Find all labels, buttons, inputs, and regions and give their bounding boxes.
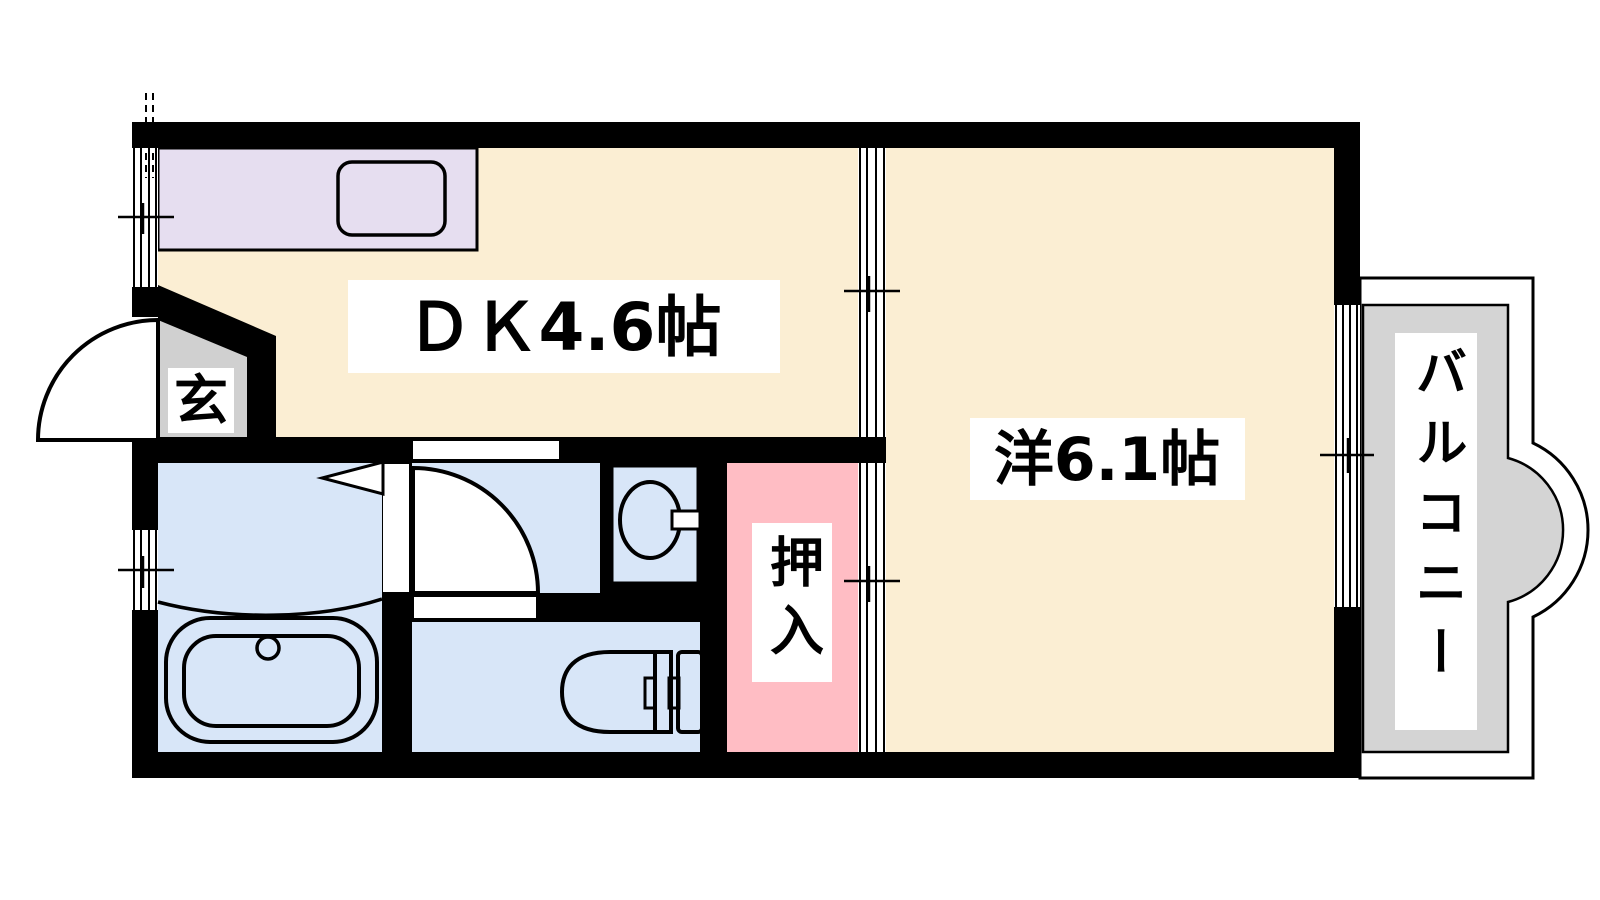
wall-closet-left [700,463,727,752]
wall-top [132,122,1360,148]
wall-right-seg2 [1334,607,1360,752]
wall-left-seg3 [132,610,158,752]
entrance-label: 玄 [174,369,228,432]
floor-plan: ＤＫ4.6帖 洋6.1帖 玄 押入 バルコニー [0,0,1600,900]
sliding-door-dk-washroom [412,440,560,460]
balcony-label: バルコニー [1406,345,1466,695]
basin-tap [672,511,700,529]
closet-label: 押入 [761,534,824,670]
floor-plan-page: ＤＫ4.6帖 洋6.1帖 玄 押入 バルコニー [0,0,1600,900]
kitchen-sink [338,162,445,235]
western-room-label: 洋6.1帖 [994,425,1220,495]
wall-left-seg1 [132,287,158,317]
door-washroom-toilet [413,596,537,619]
wall-left-seg2 [132,440,158,530]
wall-bottom [132,752,1360,778]
dk-label: ＤＫ4.6帖 [407,289,722,366]
wall-right-seg1 [1334,148,1360,305]
